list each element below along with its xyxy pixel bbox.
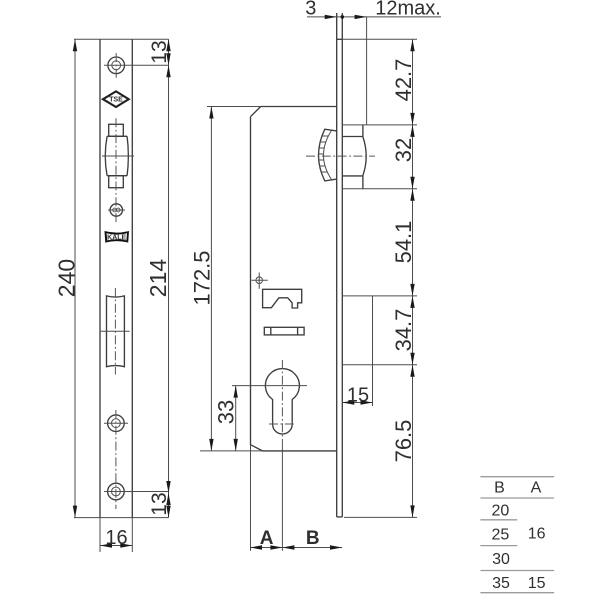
svg-text:16: 16 [105, 527, 127, 549]
svg-text:35: 35 [492, 575, 510, 592]
svg-text:3: 3 [305, 0, 316, 20]
svg-text:12max.: 12max. [375, 0, 441, 20]
svg-text:20: 20 [492, 503, 510, 520]
svg-text:25: 25 [492, 527, 510, 544]
svg-text:34.7: 34.7 [391, 309, 416, 352]
svg-text:42.7: 42.7 [391, 59, 416, 102]
svg-text:32: 32 [391, 138, 416, 162]
svg-text:214: 214 [145, 259, 171, 298]
svg-text:B: B [494, 480, 505, 497]
svg-text:54.1: 54.1 [391, 221, 416, 264]
svg-text:30: 30 [492, 551, 510, 568]
svg-text:172.5: 172.5 [190, 250, 215, 305]
svg-text:13: 13 [148, 492, 171, 515]
svg-text:15: 15 [528, 575, 546, 592]
svg-text:16: 16 [528, 525, 546, 542]
svg-text:33: 33 [214, 400, 239, 424]
svg-text:76.5: 76.5 [391, 420, 416, 463]
svg-text:TSE: TSE [109, 97, 123, 104]
svg-text:B: B [306, 528, 320, 549]
svg-text:13: 13 [148, 40, 171, 63]
svg-text:240: 240 [54, 259, 80, 297]
svg-text:KALE: KALE [107, 235, 126, 242]
svg-text:A: A [531, 480, 542, 497]
svg-text:15: 15 [347, 385, 369, 407]
svg-text:A: A [260, 528, 274, 549]
